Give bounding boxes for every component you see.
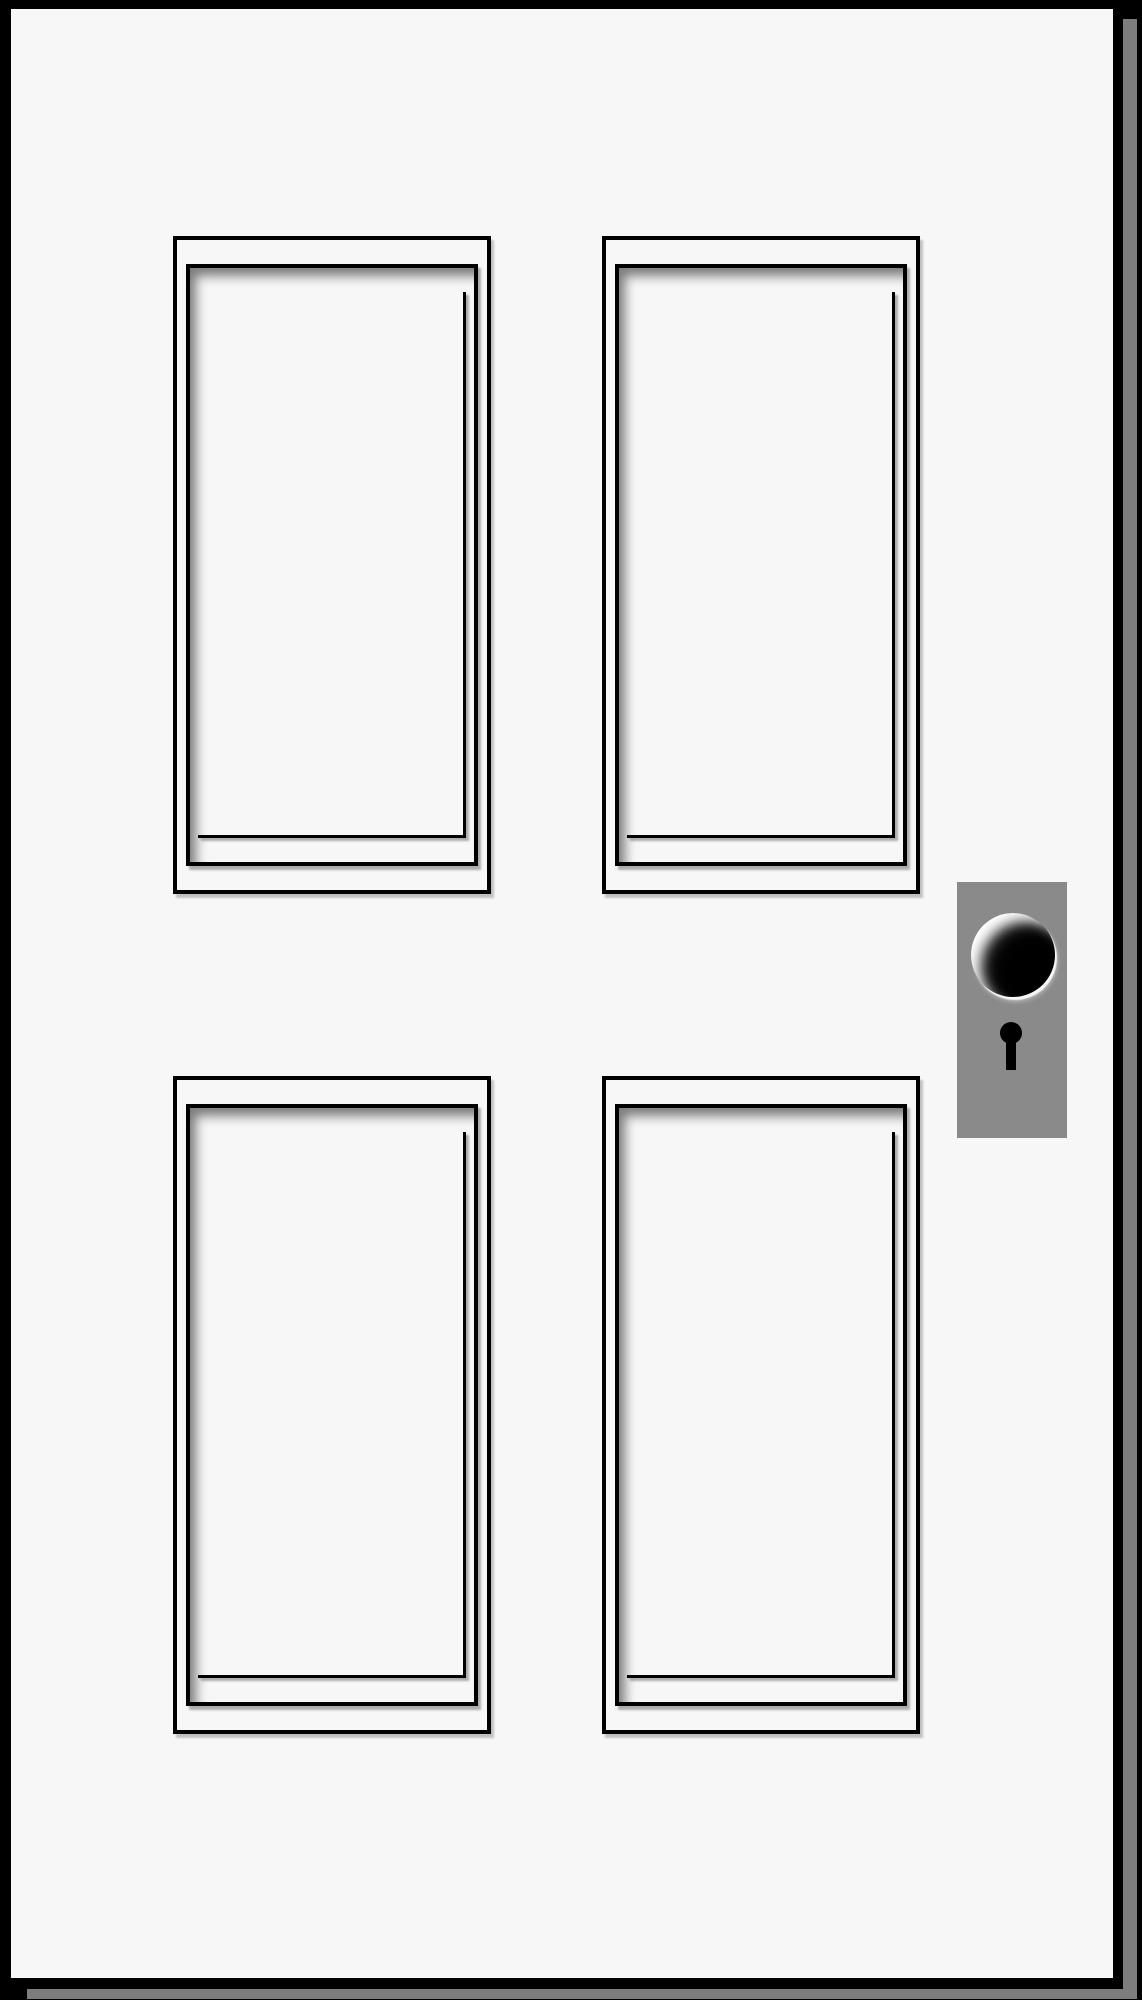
panel-recess [198,1132,466,1678]
recessed-panel-top-right [602,236,920,894]
door-illustration [0,0,1142,2000]
panel-middle-molding [615,1104,907,1706]
keyhole [957,882,1067,1138]
panel-recess [627,292,895,838]
door-slab [11,9,1113,1978]
recessed-panel-bottom-left [173,1076,491,1734]
panel-recess [198,292,466,838]
door-jamb-right [1123,19,1137,1999]
panel-middle-molding [186,264,478,866]
door-jamb-bottom [27,1989,1137,1999]
panel-middle-molding [615,264,907,866]
lock-plate [957,882,1067,1138]
keyhole-stem [1006,1034,1016,1070]
panel-middle-molding [186,1104,478,1706]
panel-recess [627,1132,895,1678]
recessed-panel-top-left [173,236,491,894]
recessed-panel-bottom-right [602,1076,920,1734]
